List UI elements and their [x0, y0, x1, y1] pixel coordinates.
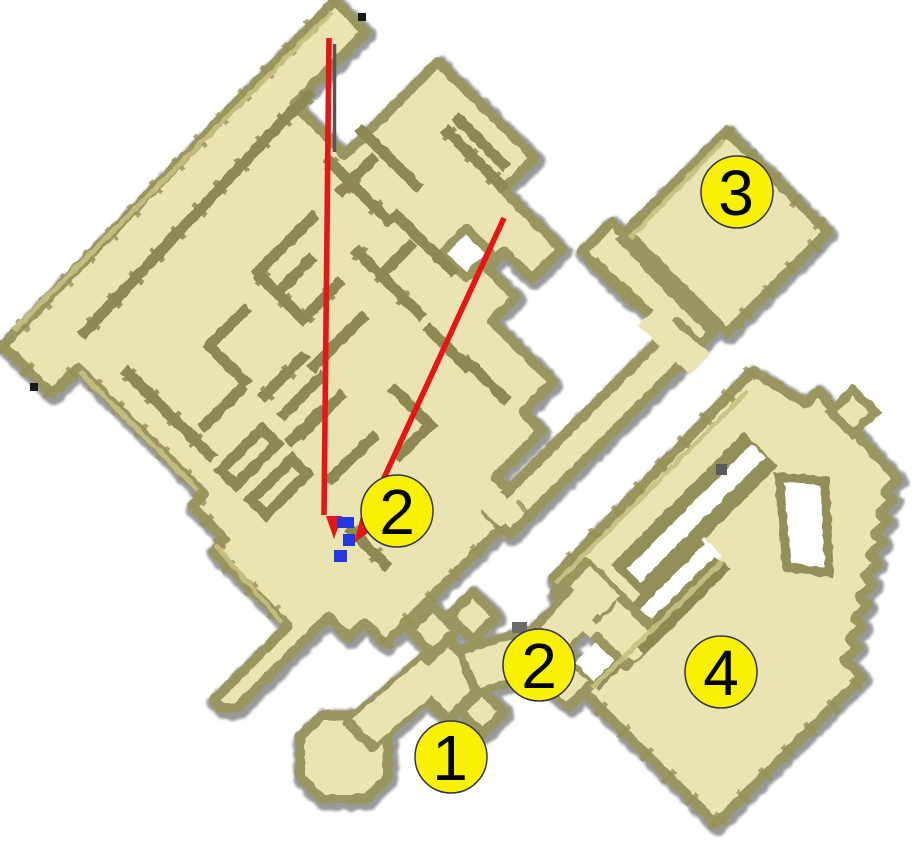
svg-text:2: 2 [379, 476, 415, 548]
svg-text:4: 4 [703, 637, 739, 709]
svg-text:3: 3 [718, 157, 754, 229]
svg-text:2: 2 [521, 630, 557, 702]
svg-text:1: 1 [432, 722, 468, 794]
